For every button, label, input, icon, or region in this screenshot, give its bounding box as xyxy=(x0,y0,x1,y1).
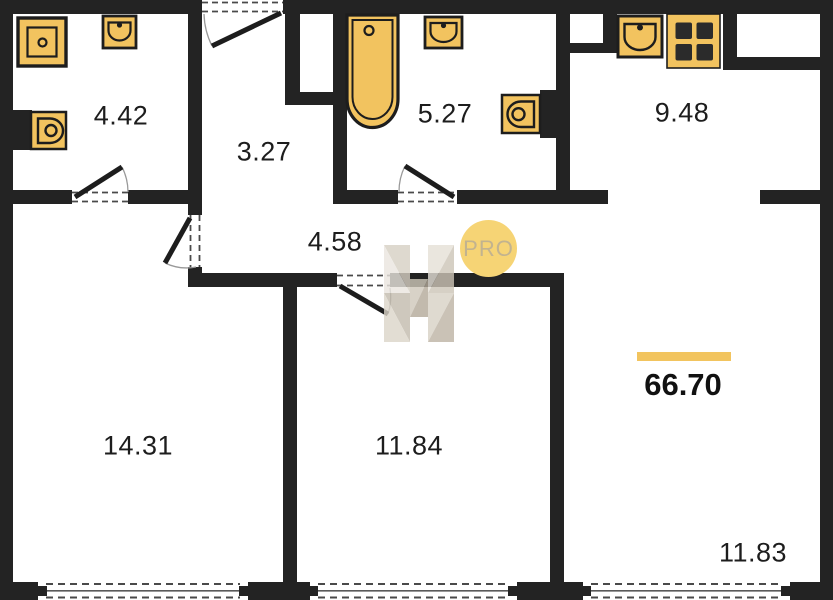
window-icon xyxy=(38,584,790,598)
door-icon xyxy=(337,273,391,314)
toilet-icon xyxy=(13,110,66,150)
bathtub-icon xyxy=(347,15,398,128)
room-area-label-room-right: 11.83 xyxy=(719,538,787,569)
room-area-label-kitchen: 9.48 xyxy=(655,98,710,129)
kitchen-sink-icon xyxy=(618,16,662,57)
door-icon xyxy=(72,167,128,204)
door-icon xyxy=(398,166,457,204)
room-area-label-room-middle: 11.84 xyxy=(375,431,443,462)
sink-icon xyxy=(425,17,462,48)
room-area-label-room-left: 14.31 xyxy=(103,431,173,462)
door-icon xyxy=(165,215,202,268)
h-logo-watermark-icon xyxy=(384,245,454,342)
total-area-label: 66.70 xyxy=(644,367,722,403)
room-area-label-bathroom-large: 5.27 xyxy=(418,99,473,130)
toilet-icon xyxy=(502,90,556,138)
pro-badge: PRO xyxy=(460,220,517,277)
floor-plan-drawing xyxy=(0,0,833,600)
shower-icon xyxy=(18,18,66,66)
entry-door-icon xyxy=(202,0,283,46)
stove-icon xyxy=(667,14,720,68)
total-area-accent-bar xyxy=(637,352,731,361)
room-area-label-bathroom-small: 4.42 xyxy=(94,101,149,132)
room-area-label-entry-hall: 3.27 xyxy=(237,137,292,168)
sink-icon xyxy=(103,16,136,48)
room-area-label-hallway: 4.58 xyxy=(308,227,363,258)
floor-plan: 4.42 3.27 5.27 9.48 4.58 14.31 11.84 11.… xyxy=(0,0,833,600)
